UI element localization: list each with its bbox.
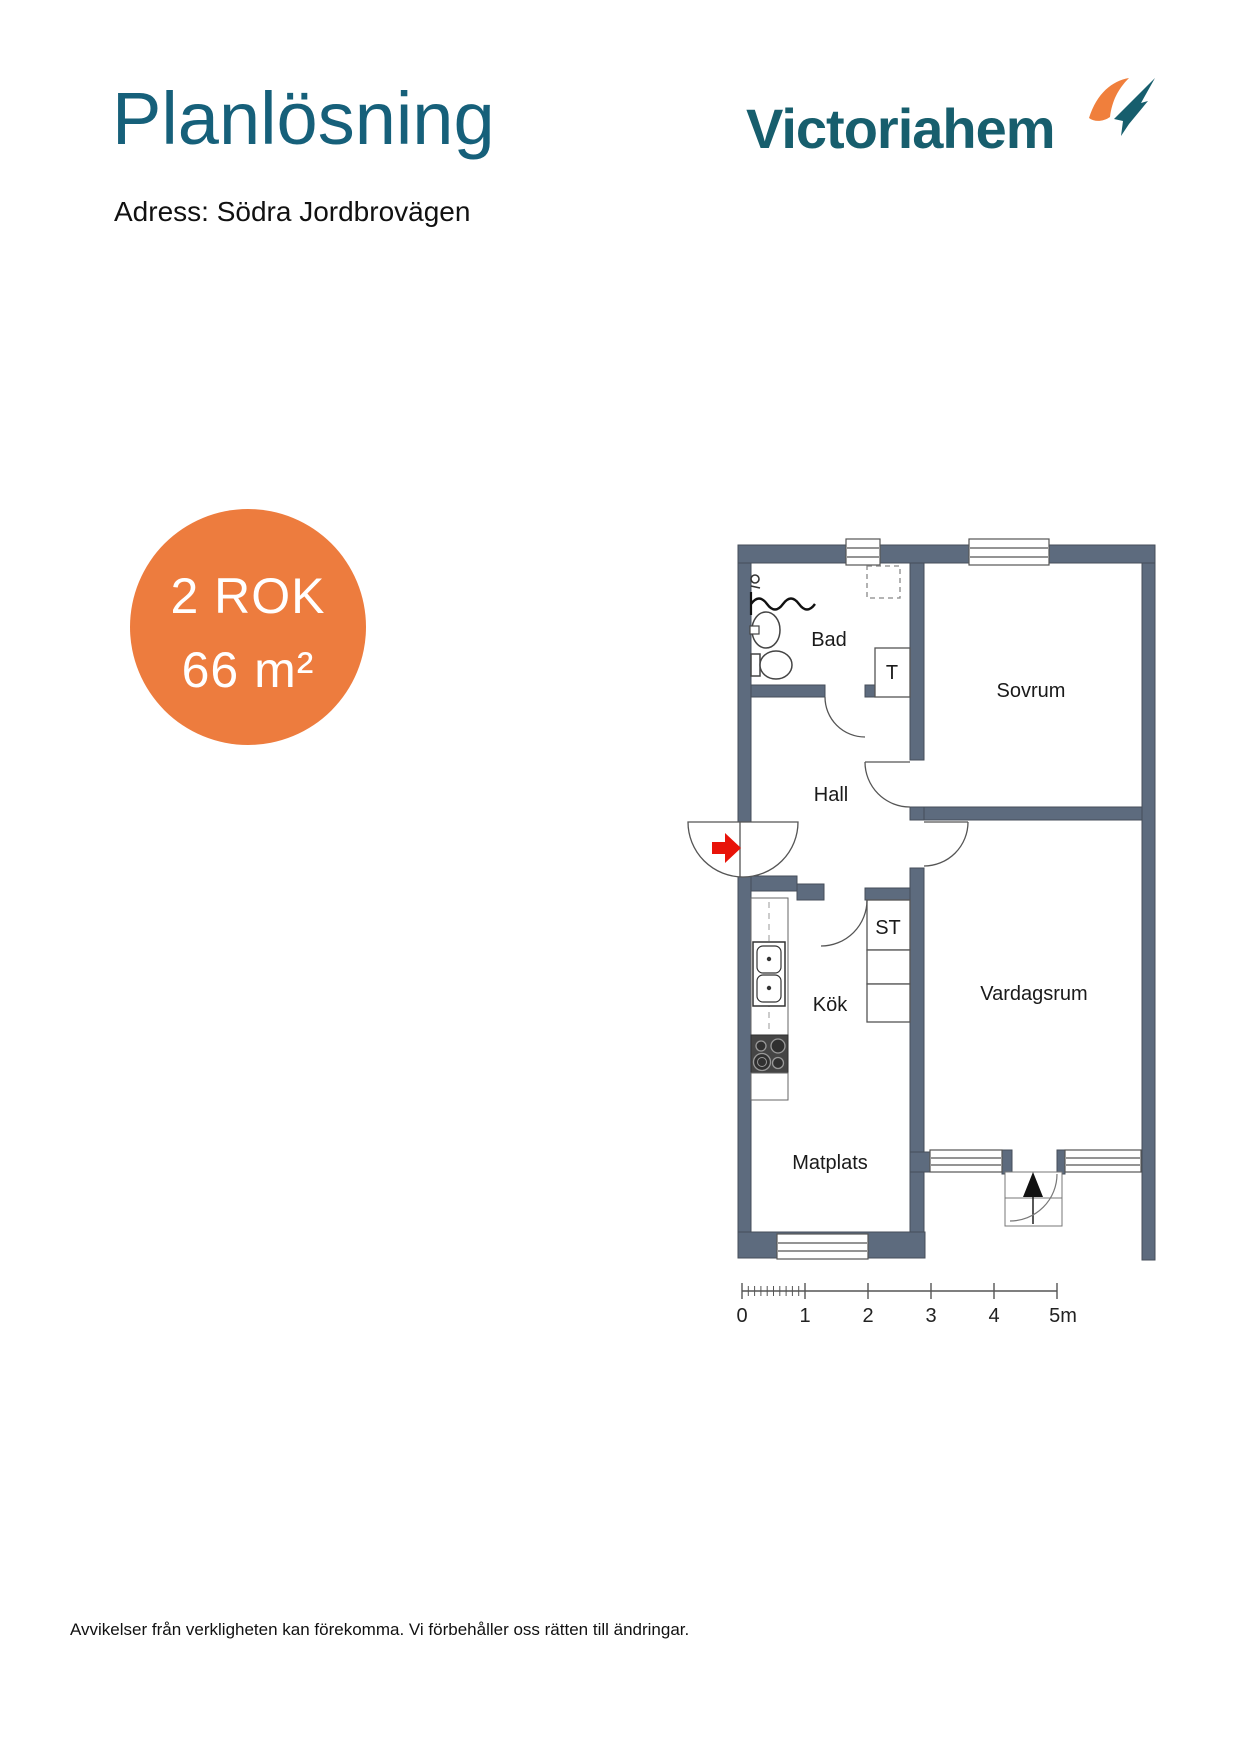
window-vardagsrum-left [930,1150,1002,1172]
wall-stub-door-right [1057,1150,1065,1174]
scale-labels: 0 1 2 3 4 5m [736,1305,1076,1327]
stove-icon [751,1035,788,1073]
scale-bar [742,1283,1057,1299]
room-label-bad: Bad [811,629,847,651]
kitchen-sink-icon [753,942,785,1006]
scale-label-4: 4 [988,1305,999,1327]
wall-top [738,545,1155,563]
closets [867,648,910,1022]
wall-hall-kok-step2 [797,884,824,900]
footer-disclaimer: Avvikelser från verkligheten kan förekom… [70,1620,689,1640]
closet-label-t: T [886,662,898,684]
wall-stub-door-left [1002,1150,1012,1174]
door-arc-bad [825,697,865,737]
kitchen-fixtures [751,898,788,1100]
door-arc-vardagsrum [924,822,968,866]
room-label-kok: Kök [813,994,848,1016]
shower-mixer-arm [751,586,760,588]
washbasin-tap [750,626,759,634]
washer-space-dashed-box [867,566,900,598]
wall-divider-lower [910,868,924,1232]
st-closet-shelf1 [867,950,910,984]
door-arc-kok [821,900,867,946]
wall-left-upper [738,563,751,822]
scale-label-3: 3 [925,1305,936,1327]
wall-bad-bottom-left [751,685,825,697]
counter-end-cell [751,1073,788,1100]
wall-sovrum-vardagsrum [924,807,1142,820]
shower-mixer-icon [751,575,759,583]
wall-divider-upper [910,563,924,760]
wall-vardagsrum-bottom-corner [910,1152,932,1172]
scale-label-2: 2 [862,1305,873,1327]
window-vardagsrum-right [1065,1150,1141,1172]
exterior-steps [1005,1172,1062,1226]
shower-curtain-icon [751,599,815,610]
room-labels: Bad T Sovrum Hall ST Kök Vardagsrum Matp… [792,629,1088,1174]
wall-hall-kok-right [865,888,910,900]
wall-hall-kok-step1 [751,876,797,891]
room-label-vardagsrum: Vardagsrum [980,983,1087,1005]
wall-right [1142,563,1155,1260]
st-closet-shelf2 [867,984,910,1022]
wall-divider-stub [910,807,924,820]
toilet-tank [751,654,760,676]
entrance-door-halfdisc [688,822,798,877]
closet-label-st: ST [875,917,901,939]
window-matplats [777,1234,868,1259]
scale-label-1: 1 [799,1305,810,1327]
bathroom-fixtures [750,575,815,679]
window-sovrum [969,539,1049,565]
entrance-symbol [688,822,798,877]
room-label-sovrum: Sovrum [997,680,1066,702]
room-label-hall: Hall [814,784,848,806]
scale-label-5m: 5m [1049,1305,1077,1327]
room-label-matplats: Matplats [792,1152,868,1174]
window-bad [846,539,880,565]
wall-left-lower [738,868,751,1258]
door-arc-sovrum [865,762,910,807]
scale-label-0: 0 [736,1305,747,1327]
floorplan-page: Planlösning Adress: Södra Jordbrovägen V… [0,0,1240,1754]
toilet-icon [760,651,792,679]
floorplan-drawing: Bad T Sovrum Hall ST Kök Vardagsrum Matp… [0,0,1240,1754]
